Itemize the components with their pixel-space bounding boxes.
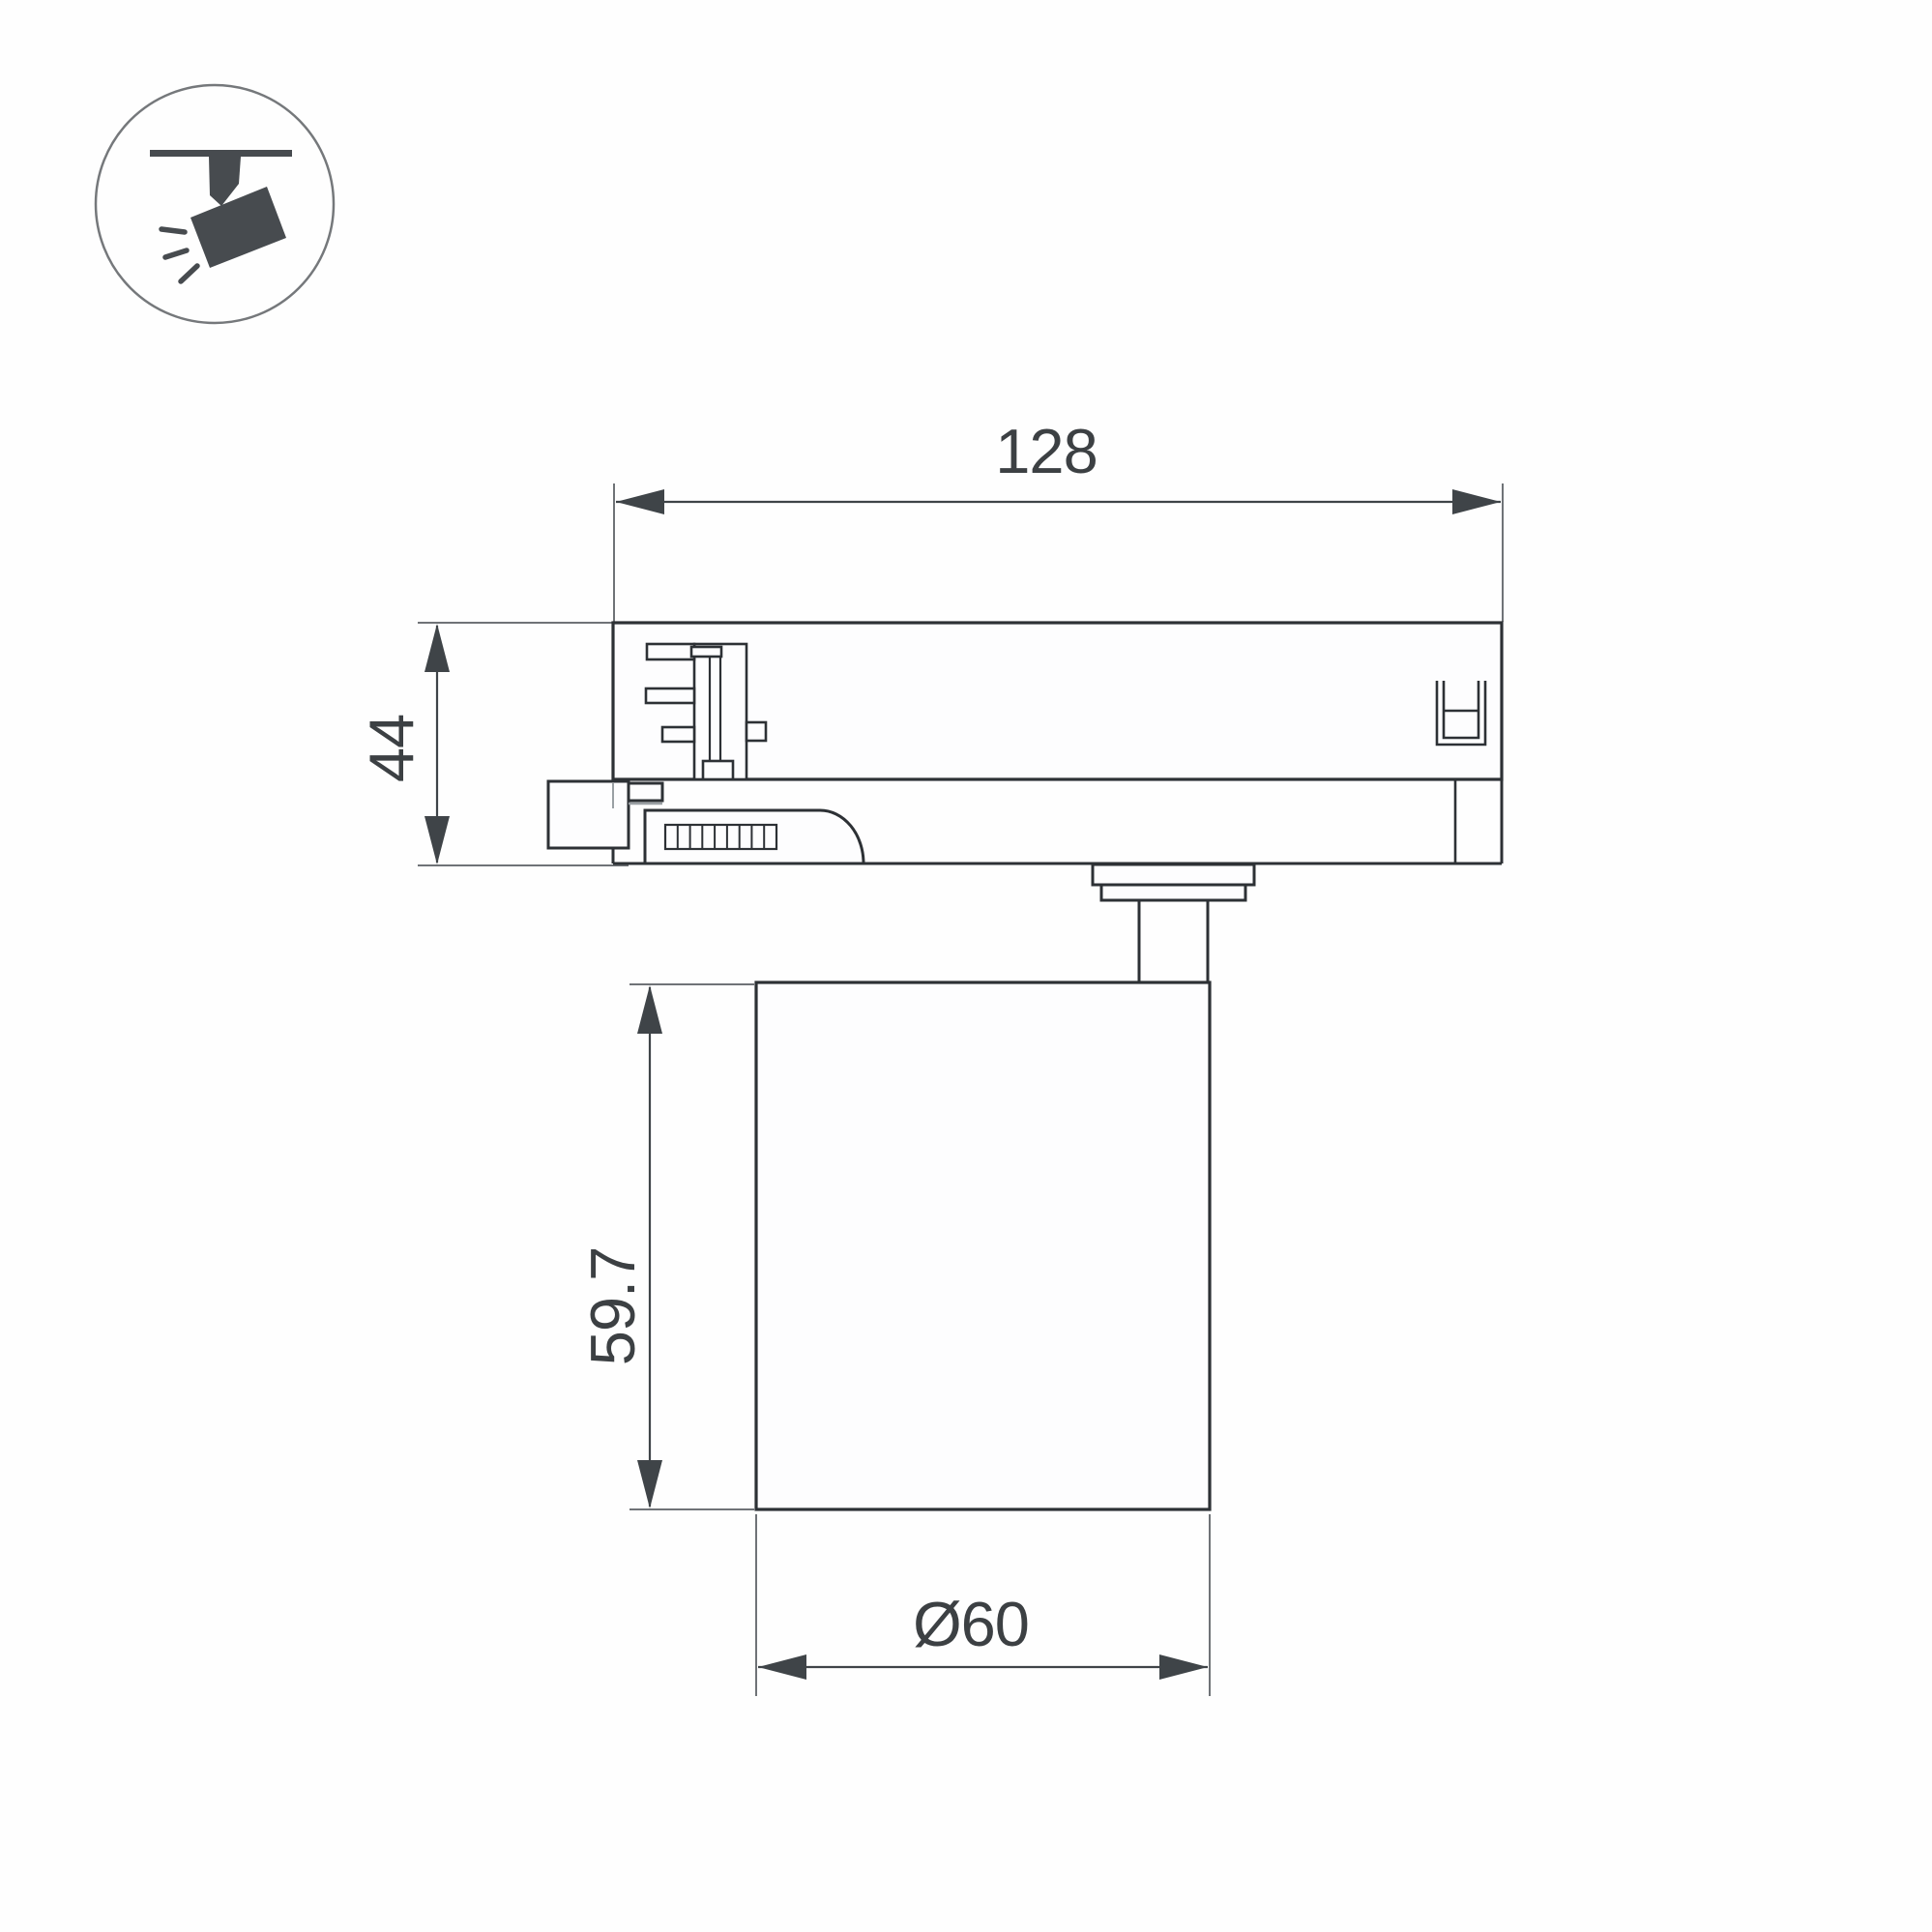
track-adapter: [548, 623, 1502, 864]
dimension-value-track-width: 128: [995, 416, 1097, 486]
pivot-plate-upper: [1093, 864, 1254, 885]
contact-side-tab: [746, 722, 766, 741]
contact-foot: [703, 761, 733, 779]
contact-pin-cap: [691, 647, 721, 657]
light-ray-icon: [181, 266, 197, 281]
lock-lever: [548, 781, 629, 848]
pivot-mount: [1093, 864, 1254, 982]
dimension-track-width: 128: [614, 416, 1503, 622]
icon-lamp-head: [190, 187, 286, 268]
track-spotlight-icon: [96, 85, 334, 323]
light-ray-icon: [161, 229, 185, 232]
dimension-value-adapter-height: 44: [356, 715, 426, 782]
contact-prong-bottom: [662, 727, 694, 742]
arrowhead-left: [616, 489, 664, 514]
light-ray-icon: [165, 250, 187, 257]
lamp-body: [756, 982, 1210, 1509]
arrowhead-up: [424, 624, 450, 672]
icon-mount-stem: [209, 157, 241, 206]
arrowhead-down: [424, 816, 450, 864]
arrowhead-down: [637, 1460, 662, 1508]
dimension-value-body-height: 59.7: [577, 1247, 648, 1366]
latch-block: [629, 783, 662, 801]
contact-prong-middle: [646, 688, 694, 703]
icon-circle-border: [96, 85, 334, 323]
arrowhead-right: [1159, 1654, 1208, 1680]
arrowhead-up: [637, 985, 662, 1034]
arrowhead-left: [758, 1654, 806, 1680]
dimension-value-body-diameter: Ø60: [913, 1589, 1029, 1659]
dimension-body-diameter: Ø60: [756, 1514, 1210, 1696]
pivot-plate-lower: [1101, 885, 1245, 900]
icon-light-rays: [161, 229, 197, 281]
drawing-canvas: 128 44: [0, 0, 1932, 1932]
arrowhead-right: [1452, 489, 1501, 514]
icon-ceiling-track: [150, 150, 292, 157]
technical-drawing: 128 44: [0, 0, 1932, 1932]
dimension-body-height: 59.7: [577, 984, 754, 1509]
contact-prong-top: [647, 644, 694, 659]
